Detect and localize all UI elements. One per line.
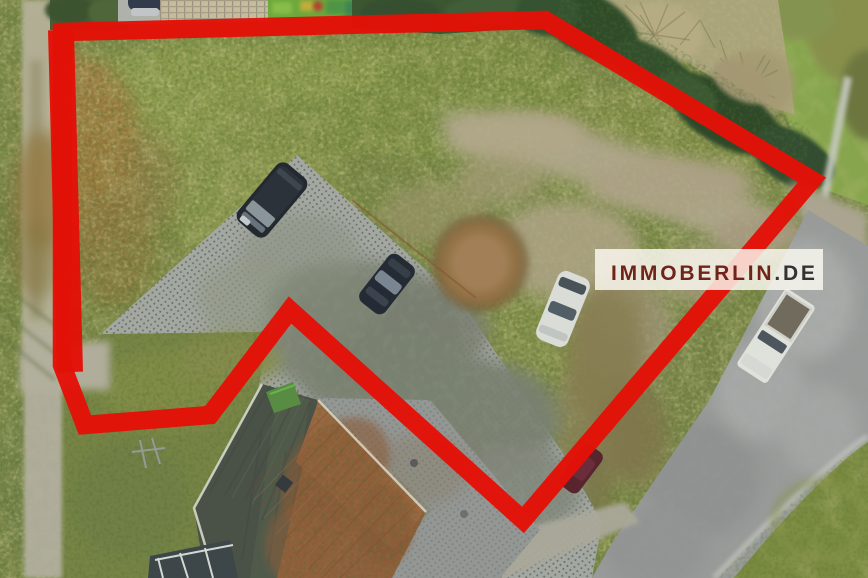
svg-text:IMMOBERLIN.DE: IMMOBERLIN.DE (611, 262, 818, 285)
